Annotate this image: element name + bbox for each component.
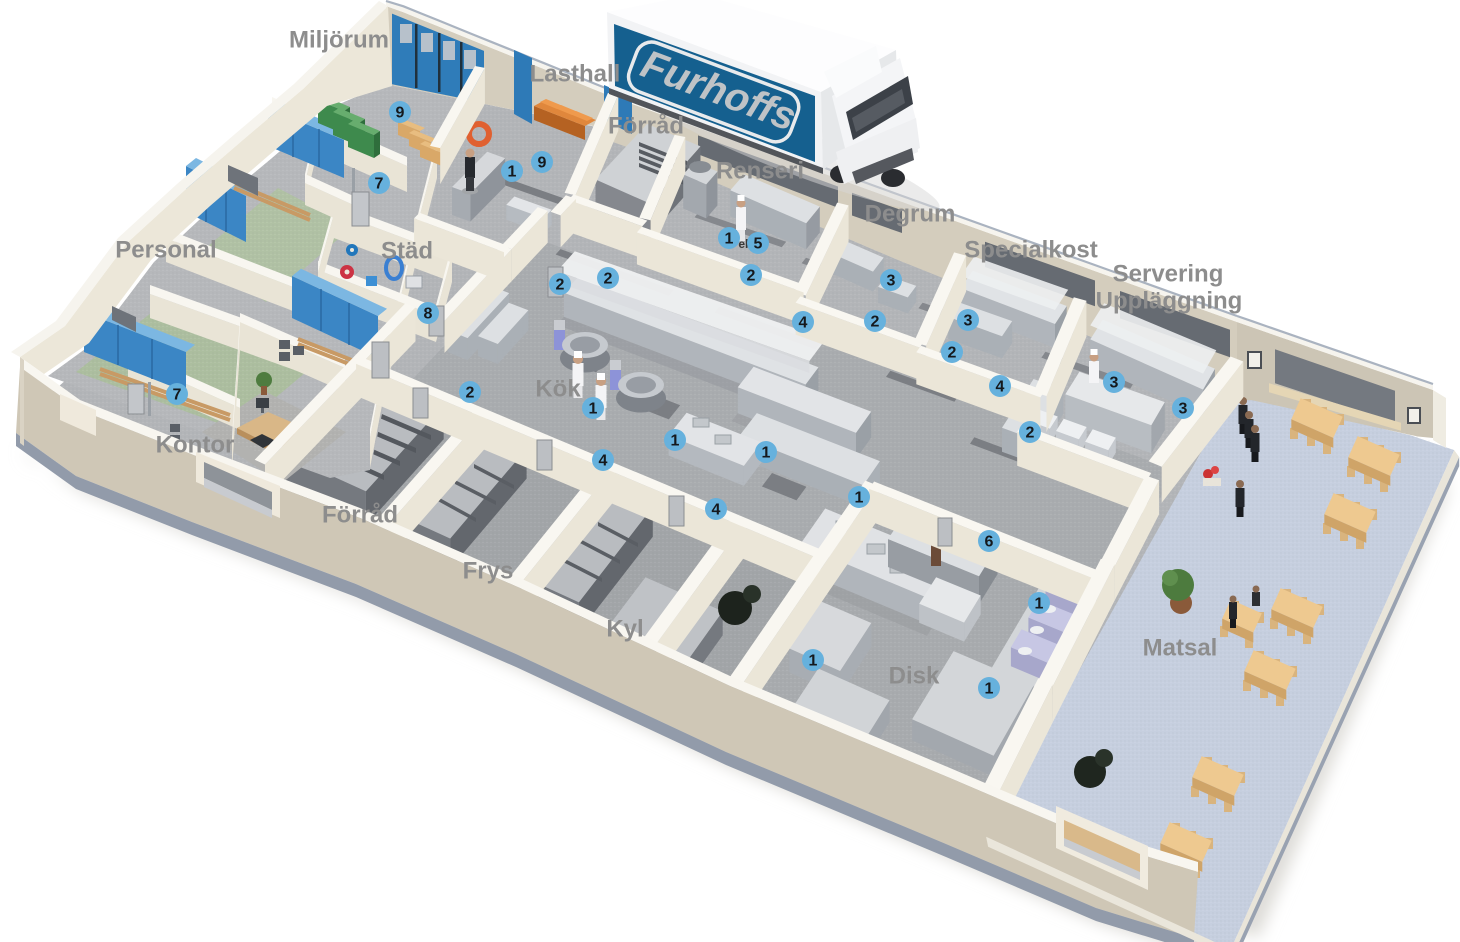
svg-text:1: 1: [508, 164, 517, 181]
svg-text:Renseri: Renseri: [716, 157, 804, 184]
svg-text:6: 6: [985, 534, 994, 551]
svg-text:Kyl: Kyl: [606, 615, 643, 642]
svg-text:4: 4: [996, 379, 1005, 396]
svg-text:Degrum: Degrum: [865, 200, 956, 227]
svg-text:Miljörum: Miljörum: [289, 26, 389, 53]
svg-text:1: 1: [855, 490, 864, 507]
svg-text:Frys: Frys: [463, 557, 514, 584]
svg-text:9: 9: [396, 105, 405, 122]
svg-text:Specialkost: Specialkost: [964, 236, 1097, 263]
svg-text:Disk: Disk: [889, 662, 940, 689]
svg-text:1: 1: [985, 681, 994, 698]
svg-text:5: 5: [754, 236, 763, 253]
svg-text:2: 2: [1026, 425, 1035, 442]
svg-text:1: 1: [589, 401, 598, 418]
svg-text:Förråd: Förråd: [608, 112, 684, 139]
svg-text:2: 2: [871, 314, 880, 331]
svg-text:1: 1: [809, 653, 818, 670]
svg-text:4: 4: [799, 315, 808, 332]
svg-text:4: 4: [599, 453, 608, 470]
svg-text:3: 3: [1179, 401, 1188, 418]
svg-text:Kök: Kök: [535, 375, 581, 402]
svg-text:2: 2: [948, 345, 957, 362]
svg-text:Uppläggning: Uppläggning: [1096, 287, 1243, 314]
svg-text:1: 1: [725, 231, 734, 248]
svg-text:2: 2: [556, 277, 565, 294]
svg-text:Servering: Servering: [1113, 260, 1224, 287]
svg-text:7: 7: [173, 387, 182, 404]
svg-text:1: 1: [762, 445, 771, 462]
svg-text:4: 4: [712, 502, 721, 519]
svg-text:Personal: Personal: [115, 236, 216, 263]
svg-text:2: 2: [747, 268, 756, 285]
svg-text:Lasthall: Lasthall: [530, 60, 621, 87]
svg-text:9: 9: [538, 155, 547, 172]
svg-text:1: 1: [1035, 596, 1044, 613]
svg-text:2: 2: [466, 385, 475, 402]
svg-text:Förråd: Förråd: [322, 501, 398, 528]
svg-text:Kontor: Kontor: [156, 431, 235, 458]
svg-text:3: 3: [1110, 375, 1119, 392]
svg-text:7: 7: [375, 176, 384, 193]
svg-text:1: 1: [671, 433, 680, 450]
svg-text:8: 8: [424, 306, 433, 323]
svg-text:3: 3: [887, 273, 896, 290]
svg-text:2: 2: [604, 271, 613, 288]
svg-text:3: 3: [964, 313, 973, 330]
svg-text:Matsal: Matsal: [1143, 634, 1218, 661]
svg-text:Städ: Städ: [381, 237, 433, 264]
